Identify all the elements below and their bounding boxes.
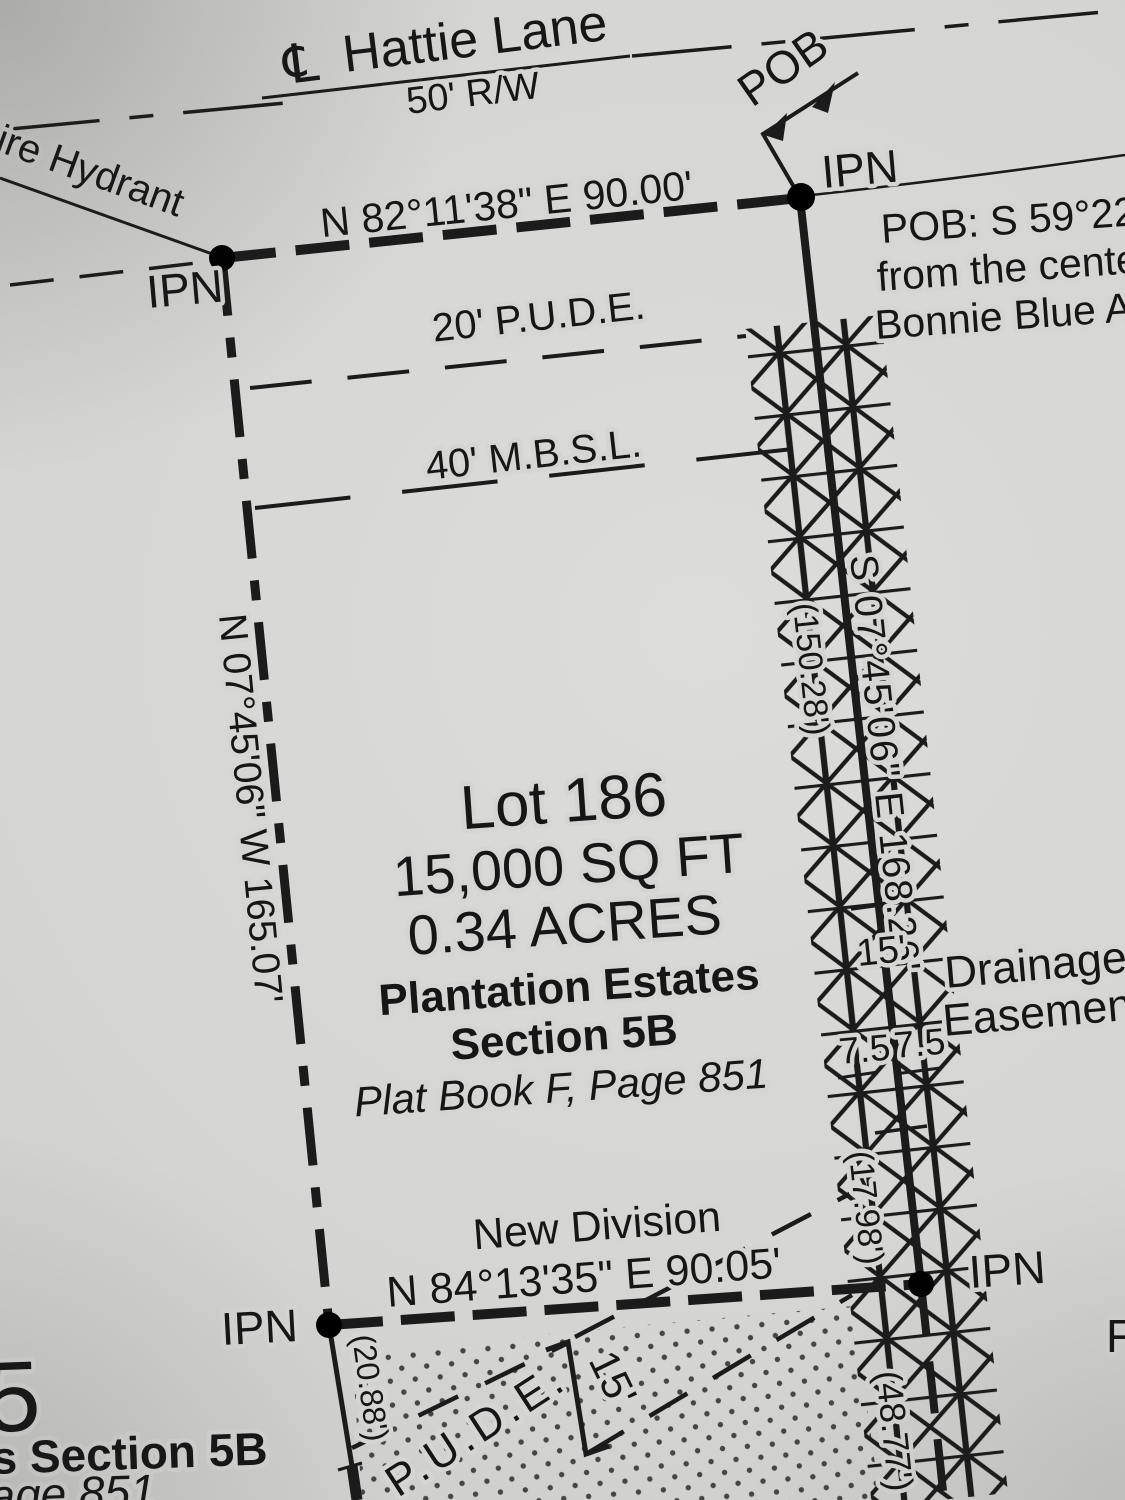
fire-hydrant-label: ire Hydrant [0, 117, 190, 225]
drainage-width-label: 15' [855, 928, 909, 975]
drainage-half-left-label: 7.5 [837, 1027, 892, 1072]
north-bearing-label: N 82°11'38" E 90.00' [318, 162, 695, 246]
adjacent-plat-page-label: age 851 [0, 1464, 157, 1500]
right-edge-letter: F [1106, 1310, 1125, 1362]
mbsl40-label: 40' M.B.S.L. [424, 421, 644, 489]
pude20-label: 20' P.U.D.E. [430, 283, 647, 350]
west-extension-tie-label: (20.88') [345, 1332, 396, 1443]
plat-photo: ℄ Hattie Lane 50' R/W ire Hydrant POB PO… [0, 0, 1125, 1500]
adjacent-lot-line [352, 1466, 357, 1500]
plat-drawing: ℄ Hattie Lane 50' R/W ire Hydrant POB PO… [0, 0, 1125, 1500]
ipn-label-top-right: IPN [819, 139, 900, 197]
ipn-label-bottom-left: IPN [220, 1299, 299, 1355]
pude20-line [250, 336, 746, 388]
ipn-marker-bottom-left [316, 1312, 342, 1338]
west-bearing-label: N 07°45'06" W 165.07' [210, 612, 290, 1006]
pob-arrowhead [812, 82, 835, 113]
pob-arrowhead [764, 113, 787, 141]
ipn-label-bottom-right: IPN [967, 1241, 1047, 1298]
centerline-symbol: ℄ [278, 30, 322, 97]
drainage-half-right-label: 7.5 [892, 1021, 947, 1066]
ipn-label-top-left: IPN [144, 259, 225, 317]
road-centerline-east [632, 10, 1125, 56]
road-centerline-west [0, 103, 285, 130]
ipn-marker-top-right [787, 183, 815, 211]
ipn-marker-bottom-right [908, 1271, 934, 1297]
road-name-label: Hattie Lane [339, 0, 610, 84]
